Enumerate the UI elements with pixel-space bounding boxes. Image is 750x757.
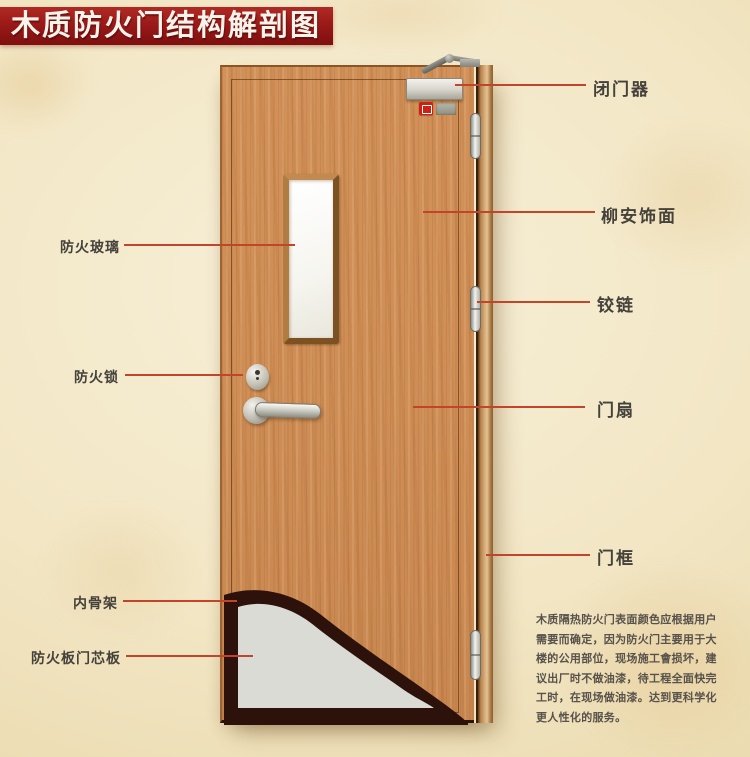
page-title: 木质防火门结构解剖图 bbox=[0, 7, 333, 45]
label-hinge: 铰链 bbox=[597, 291, 635, 316]
description-line: 议出厂时不做油漆，待工程全面快完 bbox=[536, 670, 736, 690]
leader-line-fire-lock bbox=[125, 374, 243, 376]
core-board-shape bbox=[238, 604, 434, 708]
label-core-board: 防火板门芯板 bbox=[31, 648, 121, 668]
diagram-canvas: 木质防火门结构解剖图 bbox=[0, 0, 750, 757]
fire-glass-window bbox=[283, 174, 339, 344]
label-inner-skeleton: 内骨架 bbox=[73, 593, 118, 613]
door-closer-bracket bbox=[460, 59, 480, 67]
description-line: 更人性化的服务。 bbox=[536, 709, 736, 729]
leader-line-door-closer bbox=[455, 84, 586, 86]
leader-line-door-leaf bbox=[413, 406, 585, 408]
description-line: 木质隔热防火门表面颜色应根据用户 bbox=[536, 611, 736, 631]
label-door-leaf: 门扇 bbox=[597, 396, 635, 421]
leader-line-hinge bbox=[477, 301, 590, 303]
door-closer-joint bbox=[445, 54, 454, 63]
description-line: 楼的公用部位，现场施工會损坏，建 bbox=[536, 650, 736, 670]
leader-line-veneer bbox=[423, 211, 595, 213]
description-line: 需要而确定，因为防火门主要用于大 bbox=[536, 631, 736, 651]
title-banner: 木质防火门结构解剖图 bbox=[0, 7, 333, 45]
label-fire-lock: 防火锁 bbox=[74, 367, 119, 387]
parchment-texture-blob bbox=[40, 500, 200, 640]
leader-line-fire-glass bbox=[124, 244, 295, 246]
keyhole-escutcheon bbox=[246, 364, 269, 390]
hinge-top bbox=[470, 113, 481, 159]
leader-line-door-frame bbox=[486, 554, 590, 556]
leader-line-core-board bbox=[126, 655, 253, 657]
description-text: 木质隔热防火门表面颜色应根据用户 需要而确定，因为防火门主要用于大 楼的公用部位… bbox=[536, 611, 736, 728]
metal-plate bbox=[436, 103, 456, 115]
leader-line-inner-skeleton bbox=[123, 600, 237, 602]
door-closer bbox=[406, 78, 463, 100]
door-frame-strip bbox=[476, 65, 493, 723]
parchment-texture-blob bbox=[600, 120, 750, 270]
door-illustration bbox=[220, 65, 493, 723]
label-veneer: 柳安饰面 bbox=[601, 202, 677, 227]
red-certification-tag bbox=[419, 102, 433, 115]
parchment-texture-blob bbox=[0, 40, 90, 130]
glass-pane bbox=[289, 180, 333, 338]
door-leaf bbox=[220, 65, 474, 723]
description-line: 工时，在现场做油漆。达到更科学化 bbox=[536, 689, 736, 709]
label-door-closer: 闭门器 bbox=[593, 75, 650, 100]
hinge-middle bbox=[470, 286, 481, 332]
label-fire-glass: 防火玻璃 bbox=[60, 237, 120, 257]
hinge-bottom bbox=[470, 630, 481, 680]
label-door-frame: 门框 bbox=[597, 544, 635, 569]
door-handle-lever bbox=[255, 402, 321, 419]
cutaway-section bbox=[222, 582, 476, 725]
